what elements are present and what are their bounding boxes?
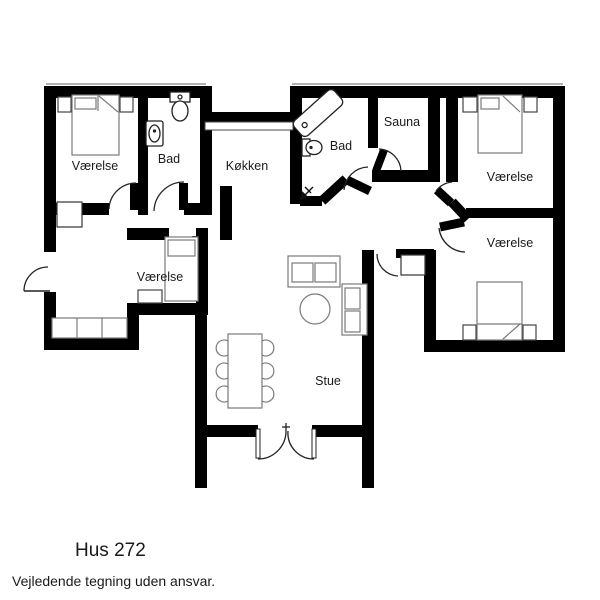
kitchen-window [205, 122, 293, 130]
door-bedroom-mid-right [439, 222, 465, 252]
room-label-bathroom-left: Bad [158, 152, 180, 166]
room-label-kitchen: Køkken [226, 159, 268, 173]
room-label-sauna: Sauna [384, 115, 420, 129]
plan-title: Hus 272 [75, 540, 146, 561]
room-label-bedroom-top-right: Værelse [487, 170, 534, 184]
sofa [288, 256, 340, 287]
door-closet [377, 254, 398, 276]
room-label-bedroom-mid-right: Værelse [487, 236, 534, 250]
double-bed-top-right [463, 95, 537, 153]
room-label-bathroom-middle: Bad [330, 139, 352, 153]
door-bathroom-left [154, 182, 188, 211]
sink-middle-bath [302, 139, 322, 156]
toilet [170, 92, 190, 121]
room-label-bedroom-small: Værelse [137, 270, 184, 284]
armchair [342, 284, 367, 335]
double-bed-top-left [58, 95, 133, 155]
door-bathroom-middle [344, 167, 370, 191]
doors [24, 149, 465, 459]
door-bedroom-top-left [109, 183, 139, 210]
floor-plan-page: Værelse Bad Køkken Bad Sauna Værelse Vær… [0, 0, 600, 600]
round-table [300, 294, 330, 324]
door-patio-double [256, 423, 316, 459]
door-exterior-left [24, 267, 50, 291]
fixtures [146, 88, 345, 199]
sink-left-bath [146, 121, 163, 146]
hall-bench [52, 318, 127, 338]
room-label-living-room: Stue [315, 374, 341, 388]
door-sauna [376, 149, 401, 171]
room-label-bedroom-top-left: Værelse [72, 159, 119, 173]
disclaimer-text: Vejledende tegning uden ansvar. [12, 573, 215, 589]
door-bedroom-top-right [436, 182, 452, 203]
closet-wardrobe [401, 255, 425, 275]
floor-plan-drawing: Værelse Bad Køkken Bad Sauna Værelse Vær… [0, 0, 600, 600]
hall-wardrobe [57, 202, 82, 227]
double-bed-mid-right [463, 282, 536, 340]
dining-table-set [216, 334, 274, 408]
